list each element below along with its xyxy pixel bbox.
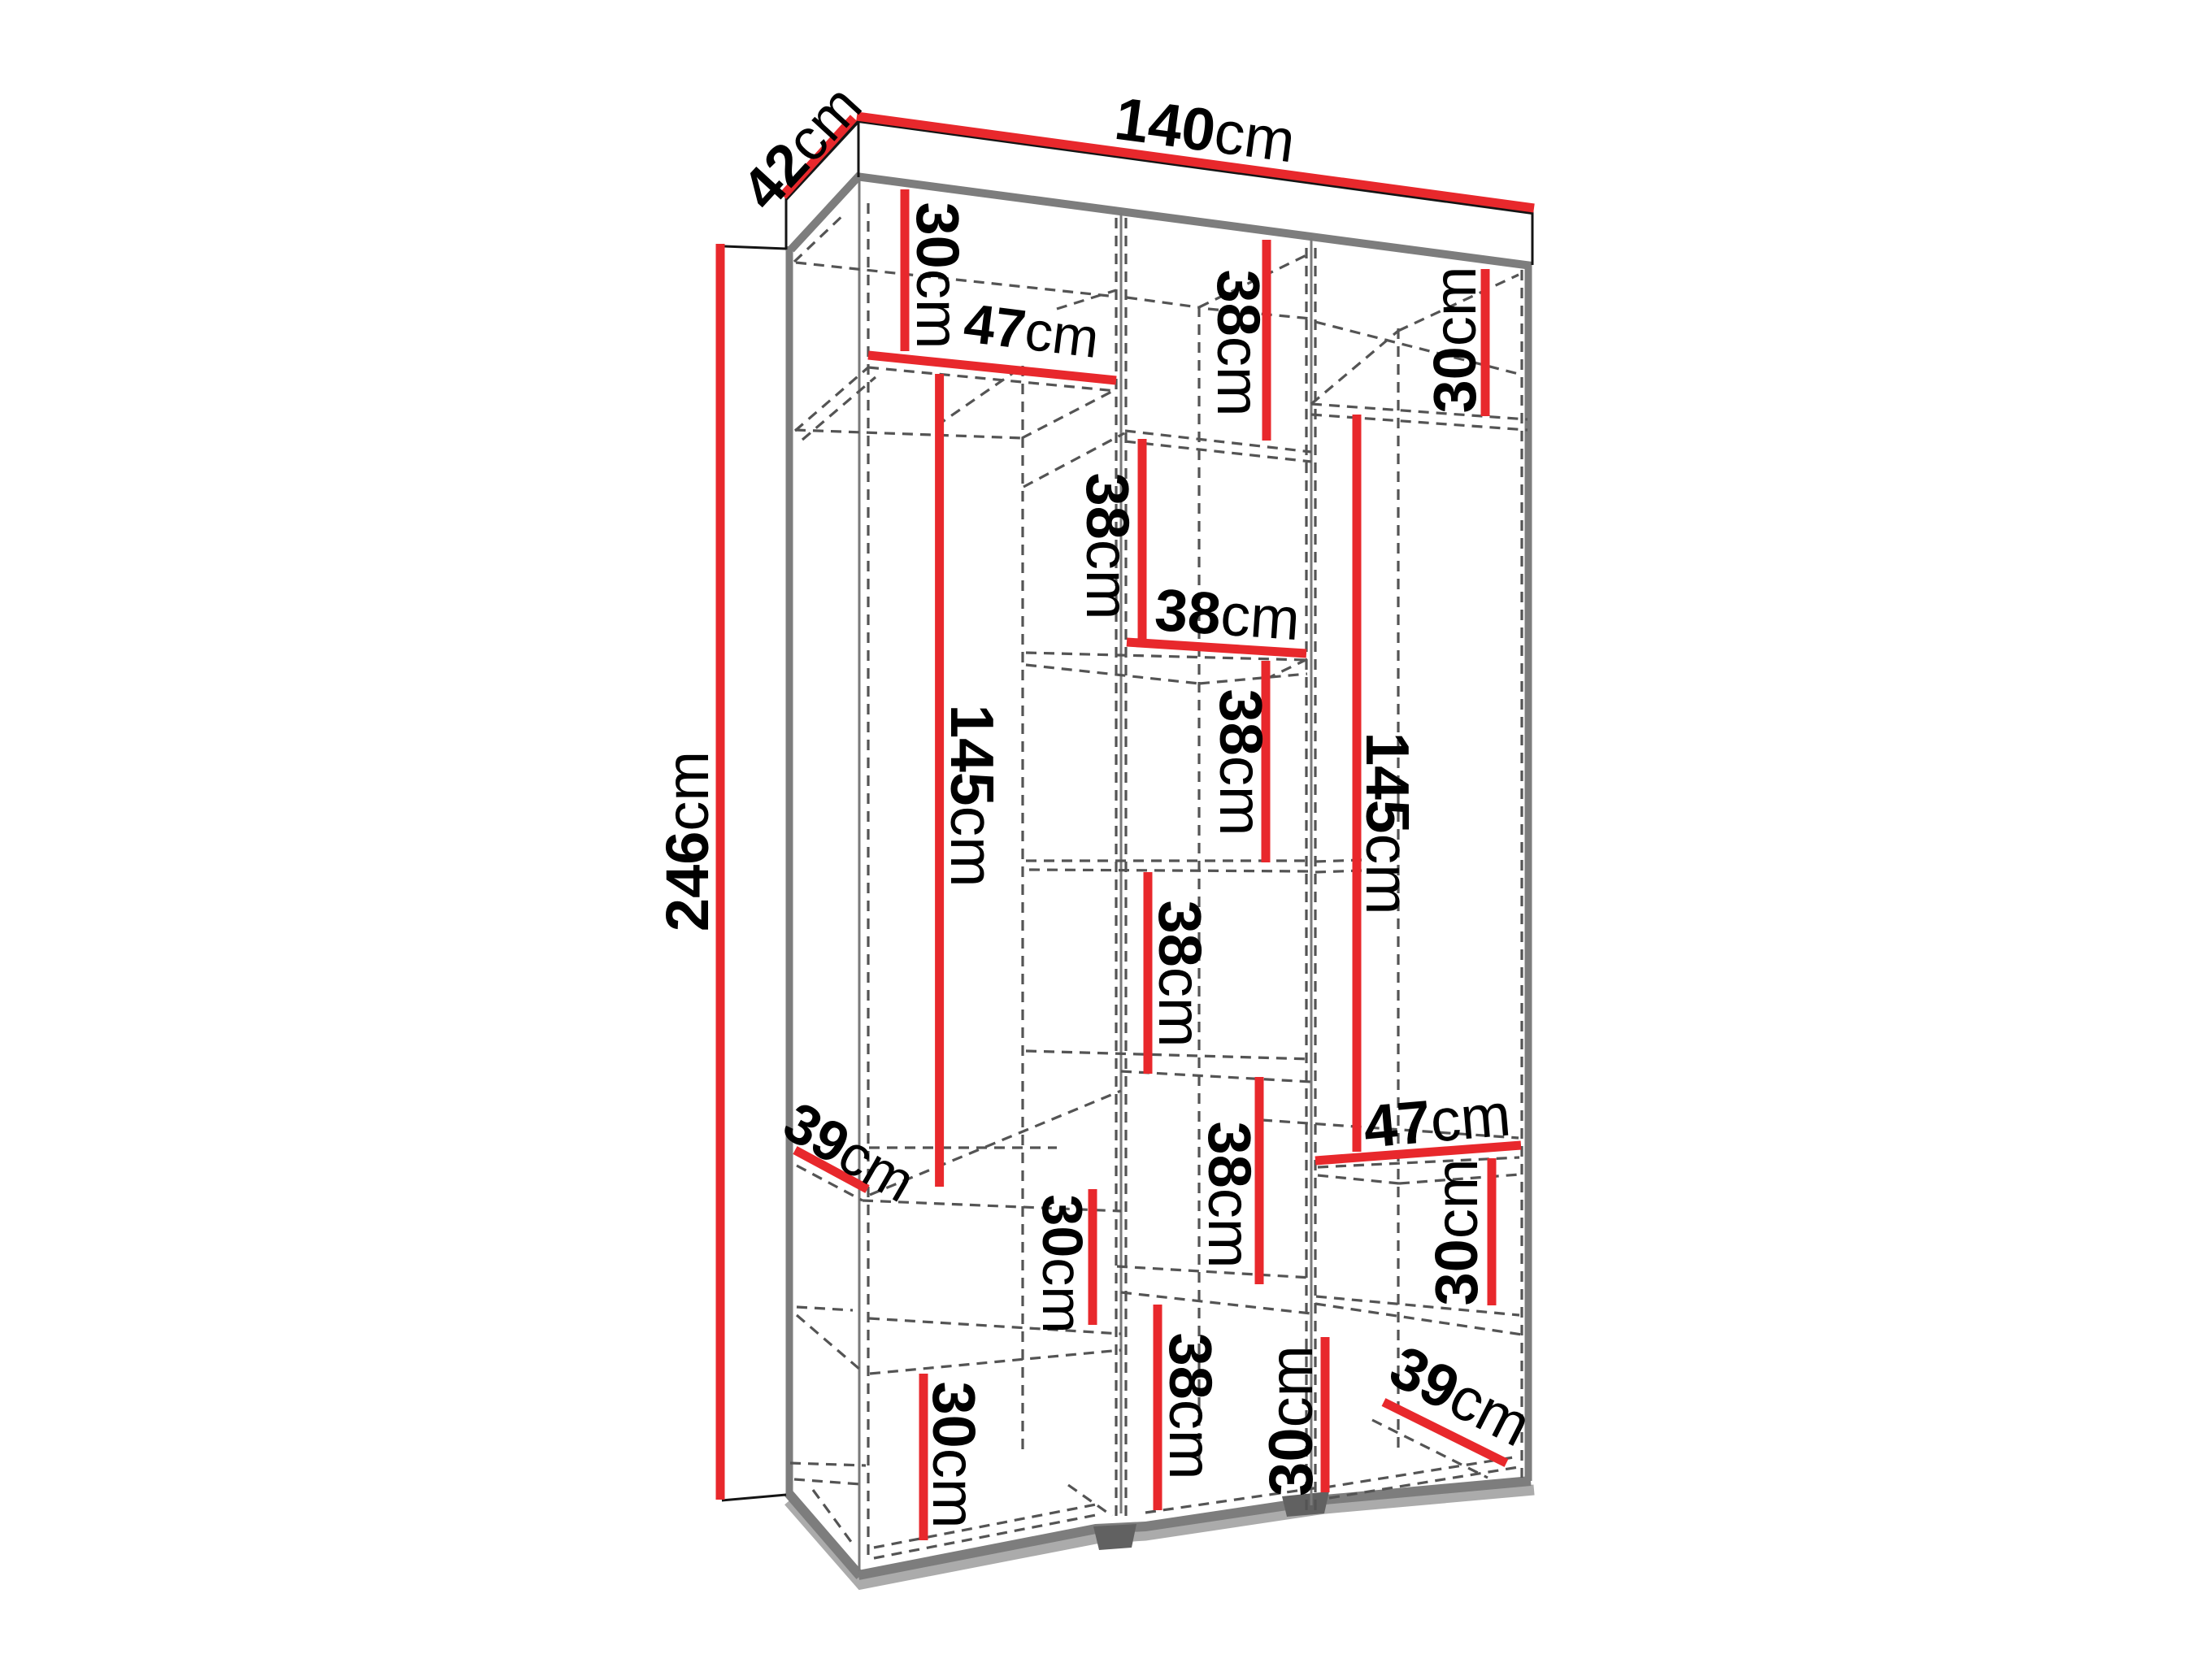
svg-text:38cm: 38cm: [1196, 1122, 1263, 1269]
svg-text:30cm: 30cm: [1031, 1194, 1094, 1333]
svg-text:47cm: 47cm: [1361, 1080, 1514, 1160]
svg-text:38cm: 38cm: [1146, 901, 1214, 1048]
svg-text:30cm: 30cm: [1257, 1345, 1326, 1496]
svg-text:38cm: 38cm: [1205, 270, 1272, 417]
svg-text:145cm: 145cm: [938, 704, 1006, 887]
svg-text:38cm: 38cm: [1074, 473, 1141, 620]
svg-text:30cm: 30cm: [1421, 267, 1488, 414]
svg-text:30cm: 30cm: [920, 1382, 988, 1529]
svg-text:145cm: 145cm: [1354, 732, 1422, 914]
svg-text:38cm: 38cm: [1207, 689, 1275, 836]
svg-text:30cm: 30cm: [1423, 1159, 1490, 1306]
svg-text:38cm: 38cm: [1153, 577, 1302, 653]
svg-text:30cm: 30cm: [904, 202, 971, 350]
svg-text:38cm: 38cm: [1157, 1333, 1224, 1480]
svg-text:246cm: 246cm: [654, 751, 721, 931]
